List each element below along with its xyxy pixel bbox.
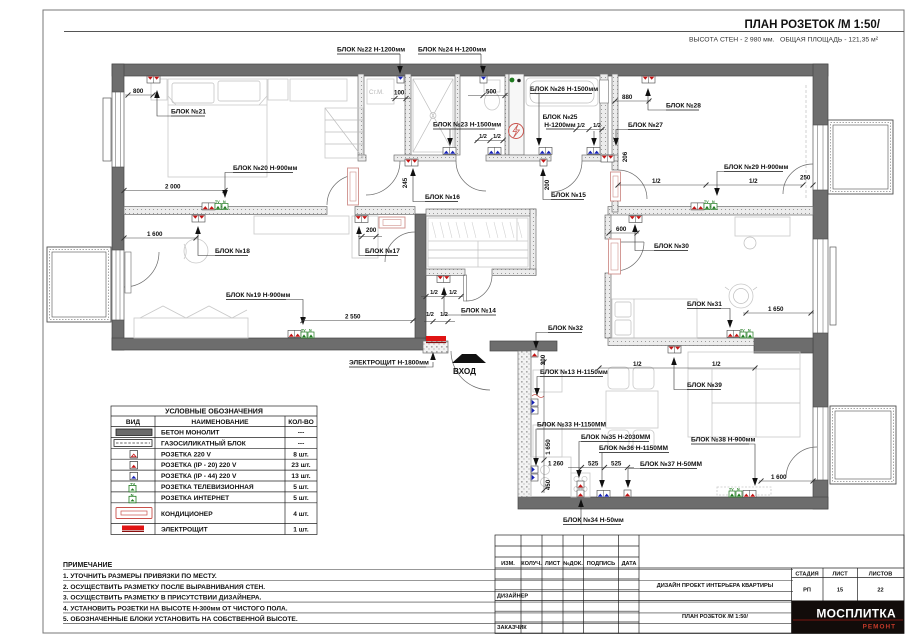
svg-text:3. ОСУЩЕСТВИТЬ РАЗМЕТКУ В ПРИС: 3. ОСУЩЕСТВИТЬ РАЗМЕТКУ В ПРИСУТСТВИИ ДИ… bbox=[63, 593, 262, 602]
svg-text:250: 250 bbox=[800, 175, 811, 182]
svg-text:15: 15 bbox=[837, 588, 843, 594]
svg-text:БЛОК №25: БЛОК №25 bbox=[543, 114, 578, 121]
svg-text:ДИЗАЙНЕР: ДИЗАЙНЕР bbox=[497, 592, 528, 600]
svg-text:1/2: 1/2 bbox=[493, 134, 501, 140]
svg-text:1 600: 1 600 bbox=[147, 231, 163, 238]
svg-text:525: 525 bbox=[588, 461, 599, 468]
svg-text:ПЛАН РОЗЕТОК /М 1:50/: ПЛАН РОЗЕТОК /М 1:50/ bbox=[744, 19, 880, 31]
svg-text:БЛОК №29 Н-900мм: БЛОК №29 Н-900мм bbox=[724, 164, 789, 171]
svg-text:500: 500 bbox=[486, 89, 497, 96]
svg-text:ДИЗАЙН ПРОЕКТ ИНТЕРЬЕРА КВАРТИ: ДИЗАЙН ПРОЕКТ ИНТЕРЬЕРА КВАРТИРЫ bbox=[657, 581, 774, 589]
svg-text:880: 880 bbox=[622, 94, 633, 101]
svg-text:БЛОК №18: БЛОК №18 bbox=[215, 248, 250, 255]
svg-text:БЛОК №28: БЛОК №28 bbox=[666, 103, 701, 110]
svg-text:БЛОК №14: БЛОК №14 bbox=[461, 308, 496, 315]
svg-text:5 шт.: 5 шт. bbox=[293, 495, 309, 502]
svg-text:525: 525 bbox=[611, 461, 622, 468]
svg-text:1/2: 1/2 bbox=[426, 312, 434, 318]
svg-text:1/2: 1/2 bbox=[479, 134, 487, 140]
svg-text:1/2: 1/2 bbox=[652, 178, 661, 185]
svg-text:ПРИМЕЧАНИЕ: ПРИМЕЧАНИЕ bbox=[63, 562, 113, 569]
svg-text:НАИМЕНОВАНИЕ: НАИМЕНОВАНИЕ bbox=[191, 419, 249, 426]
svg-text:22: 22 bbox=[877, 588, 883, 594]
svg-text:ПОДПИСЬ: ПОДПИСЬ bbox=[587, 561, 615, 567]
svg-text:БЛОК №23 Н-1500мм: БЛОК №23 Н-1500мм bbox=[433, 122, 501, 129]
svg-text:100: 100 bbox=[394, 90, 405, 97]
svg-text:БЛОК №37 Н-50ММ: БЛОК №37 Н-50ММ bbox=[640, 461, 702, 468]
svg-text:1/2: 1/2 bbox=[633, 361, 642, 368]
svg-text:1 650: 1 650 bbox=[545, 439, 552, 455]
svg-text:БЛОК №15: БЛОК №15 bbox=[551, 192, 586, 199]
svg-text:РОЗЕТКА ТЕЛЕВИЗИОННАЯ: РОЗЕТКА ТЕЛЕВИЗИОННАЯ bbox=[161, 484, 254, 491]
svg-text:1/2: 1/2 bbox=[430, 290, 438, 296]
svg-text:ИЗМ.: ИЗМ. bbox=[501, 561, 515, 567]
svg-text:РОЗЕТКА 220 V: РОЗЕТКА 220 V bbox=[161, 451, 211, 458]
svg-text:ЭЛЕКТРОЩИТ: ЭЛЕКТРОЩИТ bbox=[161, 527, 208, 534]
svg-text:КОЛ-ВО: КОЛ-ВО bbox=[288, 419, 314, 426]
svg-text:4. УСТАНОВИТЬ РОЗЕТКИ НА ВЫСОТ: 4. УСТАНОВИТЬ РОЗЕТКИ НА ВЫСОТЕ Н-300мм … bbox=[63, 605, 288, 612]
svg-text:БЛОК №19 Н-900мм: БЛОК №19 Н-900мм bbox=[226, 292, 291, 299]
svg-text:2 000: 2 000 bbox=[165, 184, 181, 191]
svg-text:БЛОК №38 Н-900мм: БЛОК №38 Н-900мм bbox=[691, 437, 756, 444]
svg-text:УСЛОВНЫЕ ОБОЗНАЧЕНИЯ: УСЛОВНЫЕ ОБОЗНАЧЕНИЯ bbox=[165, 409, 263, 416]
svg-text:1/2: 1/2 bbox=[449, 290, 457, 296]
svg-text:200: 200 bbox=[544, 179, 551, 190]
svg-text:1 650: 1 650 bbox=[768, 306, 784, 313]
svg-text:8 шт.: 8 шт. bbox=[293, 451, 309, 458]
svg-text:1. УТОЧНИТЬ РАЗМЕРЫ ПРИВЯЗКИ П: 1. УТОЧНИТЬ РАЗМЕРЫ ПРИВЯЗКИ ПО МЕСТУ. bbox=[63, 573, 217, 580]
svg-text:Ст.М.: Ст.М. bbox=[369, 90, 384, 96]
svg-text:1/2: 1/2 bbox=[749, 178, 758, 185]
svg-text:ЭЛЕКТРОЩИТ Н-1800мм: ЭЛЕКТРОЩИТ Н-1800мм bbox=[349, 360, 429, 367]
svg-text:БЛОК №33 Н-1150ММ: БЛОК №33 Н-1150ММ bbox=[537, 422, 606, 429]
svg-text:2 550: 2 550 bbox=[345, 314, 361, 321]
svg-text:ВЫСОТА СТЕН - 2 980 мм. ОБЩА: ВЫСОТА СТЕН - 2 980 мм. ОБЩАЯ ПЛОЩАДЬ - … bbox=[689, 37, 879, 44]
svg-text:---: --- bbox=[298, 440, 305, 447]
svg-text:2. ОСУЩЕСТВИТЬ РАЗМЕТКУ ПОСЛЕ: 2. ОСУЩЕСТВИТЬ РАЗМЕТКУ ПОСЛЕ ВЫРАВНИВАН… bbox=[63, 584, 265, 591]
svg-text:1/2: 1/2 bbox=[440, 312, 448, 318]
svg-text:ДАТА: ДАТА bbox=[622, 561, 637, 567]
svg-text:1 600: 1 600 bbox=[771, 474, 787, 481]
svg-text:БЛОК №20 Н-900мм: БЛОК №20 Н-900мм bbox=[233, 165, 298, 172]
svg-text:N: N bbox=[131, 493, 134, 498]
svg-text:23 шт.: 23 шт. bbox=[291, 462, 310, 469]
svg-text:БЕТОН МОНОЛИТ: БЕТОН МОНОЛИТ bbox=[161, 430, 219, 437]
svg-text:ВИД: ВИД bbox=[126, 419, 141, 426]
svg-text:БЛОК №34 Н-50мм: БЛОК №34 Н-50мм bbox=[563, 517, 624, 524]
svg-text:ЛИСТ: ЛИСТ bbox=[832, 571, 848, 577]
svg-text:РЕМОНТ: РЕМОНТ bbox=[863, 624, 896, 631]
svg-text:БЛОК №30: БЛОК №30 bbox=[654, 243, 689, 250]
svg-text:РОЗЕТКА ИНТЕРНЕТ: РОЗЕТКА ИНТЕРНЕТ bbox=[161, 495, 229, 502]
svg-text:БЛОК №39: БЛОК №39 bbox=[687, 382, 722, 389]
svg-text:РП: РП bbox=[803, 588, 811, 594]
svg-text:ЛИСТОВ: ЛИСТОВ bbox=[869, 571, 893, 577]
svg-text:450: 450 bbox=[545, 479, 552, 490]
svg-text:БЛОК №32: БЛОК №32 bbox=[548, 325, 583, 332]
svg-text:КОНДИЦИОНЕР: КОНДИЦИОНЕР bbox=[161, 511, 213, 518]
svg-text:200: 200 bbox=[366, 227, 377, 234]
svg-text:1/2: 1/2 bbox=[593, 123, 601, 129]
svg-text:БЛОК №24 Н-1200мм: БЛОК №24 Н-1200мм bbox=[418, 47, 486, 54]
svg-text:БЛОК №13 Н-1150мм: БЛОК №13 Н-1150мм bbox=[540, 369, 608, 376]
svg-text:БЛОК №27: БЛОК №27 bbox=[628, 122, 663, 129]
svg-text:1/2: 1/2 bbox=[577, 123, 585, 129]
svg-text:БЛОК №22 Н-1200мм: БЛОК №22 Н-1200мм bbox=[337, 47, 405, 54]
svg-text:БЛОК №36 Н-1150ММ: БЛОК №36 Н-1150ММ bbox=[599, 445, 668, 452]
svg-text:1/2: 1/2 bbox=[712, 361, 721, 368]
svg-text:СТАДИЯ: СТАДИЯ bbox=[795, 571, 818, 577]
svg-text:БЛОК №21: БЛОК №21 bbox=[171, 109, 206, 116]
svg-text:РОЗЕТКА (IP - 20) 220 V: РОЗЕТКА (IP - 20) 220 V bbox=[161, 462, 237, 469]
svg-text:245: 245 bbox=[402, 177, 409, 188]
svg-text:600: 600 bbox=[616, 226, 627, 233]
svg-text:ВХОД: ВХОД bbox=[453, 367, 476, 376]
svg-text:БЛОК №35 Н-2030ММ: БЛОК №35 Н-2030ММ bbox=[581, 434, 651, 441]
svg-text:---: --- bbox=[298, 430, 305, 437]
svg-text:5 шт.: 5 шт. bbox=[293, 484, 309, 491]
svg-text:КОЛУЧ.: КОЛУЧ. bbox=[521, 561, 542, 567]
svg-text:БЛОК №16: БЛОК №16 bbox=[425, 194, 460, 201]
svg-text:БЛОК №26 Н-1500мм: БЛОК №26 Н-1500мм bbox=[530, 86, 598, 93]
svg-text:Н-1200мм: Н-1200мм bbox=[544, 122, 576, 129]
svg-text:1 260: 1 260 bbox=[548, 461, 564, 468]
svg-text:МОСПЛИТКА: МОСПЛИТКА bbox=[816, 607, 896, 621]
svg-text:13 шт.: 13 шт. bbox=[291, 473, 310, 480]
svg-text:РОЗЕТКА (IP - 44) 220 V: РОЗЕТКА (IP - 44) 220 V bbox=[161, 473, 237, 480]
svg-text:БЛОК №17: БЛОК №17 bbox=[365, 248, 400, 255]
svg-text:№ДОК.: №ДОК. bbox=[563, 561, 583, 567]
svg-text:ПЛАН РОЗЕТОК /М 1:50/: ПЛАН РОЗЕТОК /М 1:50/ bbox=[682, 614, 748, 620]
svg-text:1 шт.: 1 шт. bbox=[293, 527, 309, 534]
svg-text:ГАЗОСИЛИКАТНЫЙ БЛОК: ГАЗОСИЛИКАТНЫЙ БЛОК bbox=[161, 438, 247, 447]
svg-text:ЛИСТ: ЛИСТ bbox=[545, 561, 561, 567]
svg-text:4 шт.: 4 шт. bbox=[293, 511, 309, 518]
svg-text:5. ОБОЗНАЧЕННЫЕ БЛОКИ УСТАНОВИ: 5. ОБОЗНАЧЕННЫЕ БЛОКИ УСТАНОВИТЬ НА СОБС… bbox=[63, 614, 298, 623]
svg-text:TV: TV bbox=[130, 482, 135, 487]
svg-text:800: 800 bbox=[133, 88, 144, 95]
svg-text:206: 206 bbox=[622, 151, 629, 162]
svg-text:ЗАКАЗЧИК: ЗАКАЗЧИК bbox=[497, 625, 527, 631]
svg-text:БЛОК №31: БЛОК №31 bbox=[687, 301, 722, 308]
